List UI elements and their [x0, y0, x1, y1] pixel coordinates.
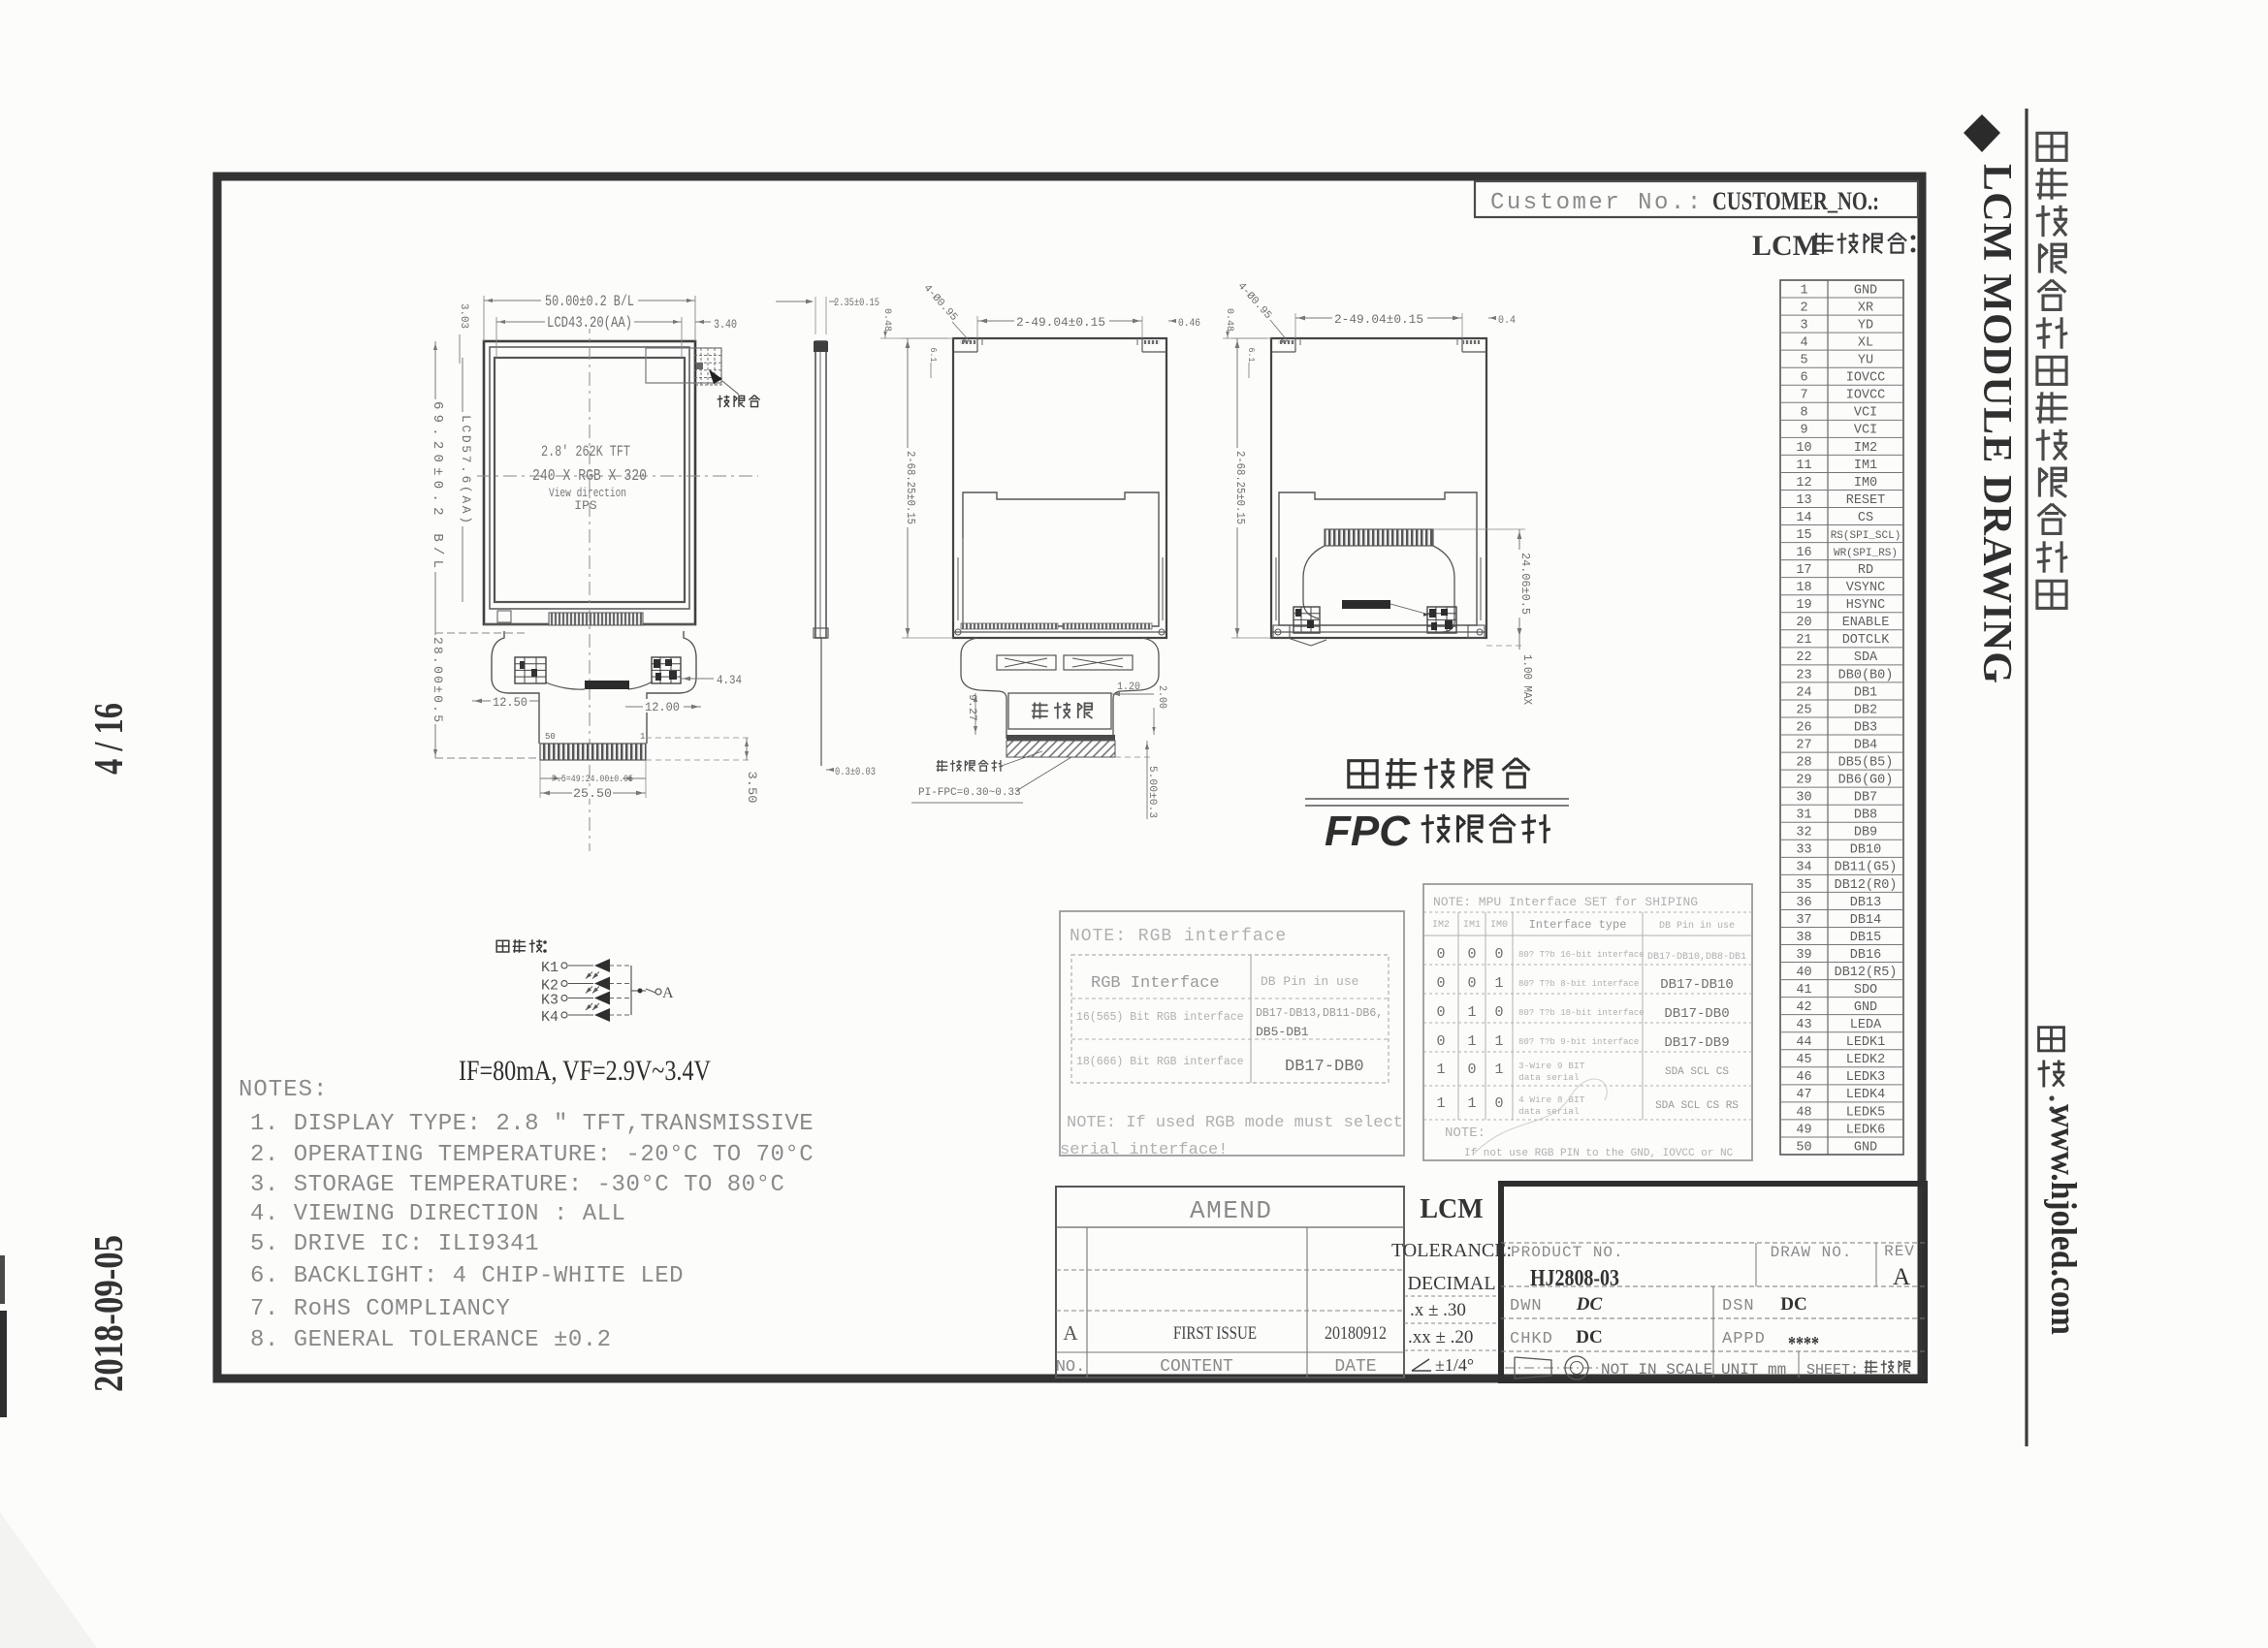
svg-text:PRODUCT NO.: PRODUCT NO. [1511, 1244, 1624, 1261]
svg-text:XL: XL [1858, 336, 1873, 351]
svg-text:DB7: DB7 [1854, 791, 1877, 806]
svg-text:12.00: 12.00 [645, 700, 680, 714]
svg-text:0: 0 [1467, 1062, 1476, 1078]
svg-text:LCD43.20(AA): LCD43.20(AA) [547, 314, 632, 332]
svg-text:LEDK4: LEDK4 [1846, 1088, 1886, 1102]
svg-text:1.00 MAX: 1.00 MAX [1520, 654, 1534, 705]
svg-text:IOVCC: IOVCC [1846, 371, 1886, 386]
svg-text:2.00: 2.00 [1156, 685, 1167, 709]
svg-text:28: 28 [1796, 755, 1811, 770]
svg-text:A: A [1063, 1321, 1078, 1345]
svg-text:20180912: 20180912 [1325, 1323, 1387, 1344]
svg-text:3.50: 3.50 [745, 772, 759, 804]
svg-text:0.4: 0.4 [1498, 315, 1516, 327]
svg-text:47: 47 [1796, 1088, 1811, 1102]
svg-text:CUSTOMER_NO.:: CUSTOMER_NO.: [1712, 187, 1879, 215]
svg-text:38: 38 [1796, 931, 1811, 945]
svg-text:NOTE: MPU Interface SET for SH: NOTE: MPU Interface SET for SHIPING [1433, 895, 1698, 909]
svg-text:NOT IN SCALE: NOT IN SCALE [1601, 1361, 1712, 1379]
svg-text:IM2: IM2 [1432, 920, 1450, 931]
svg-text:0: 0 [1436, 1004, 1445, 1021]
svg-text:3.03: 3.03 [458, 303, 469, 329]
svg-text:20: 20 [1796, 616, 1811, 630]
svg-text:CHKD: CHKD [1510, 1330, 1553, 1348]
svg-text:80? T?b 8-bit interface: 80? T?b 8-bit interface [1518, 979, 1639, 989]
svg-text:ENABLE: ENABLE [1842, 616, 1890, 630]
svg-text:6.1: 6.1 [928, 348, 938, 363]
svg-text:SDA: SDA [1854, 650, 1878, 665]
svg-text:DB17-DB9: DB17-DB9 [1664, 1035, 1729, 1051]
svg-text:APPD: APPD [1722, 1330, 1766, 1348]
svg-text:6: 6 [1800, 371, 1807, 386]
svg-text:2: 2 [1800, 301, 1807, 315]
svg-text:LEDK5: LEDK5 [1846, 1105, 1886, 1120]
svg-text:28.00±0.5: 28.00±0.5 [431, 637, 445, 722]
svg-text:10: 10 [1796, 441, 1811, 456]
svg-text:IM1: IM1 [1854, 459, 1877, 473]
svg-text:DC: DC [1576, 1294, 1603, 1315]
svg-text:LEDA: LEDA [1850, 1018, 1882, 1032]
svg-text:2018-09-05: 2018-09-05 [87, 1235, 132, 1392]
svg-text:0: 0 [1494, 1095, 1503, 1112]
svg-text:data serial: data serial [1518, 1072, 1580, 1083]
svg-text:46: 46 [1796, 1070, 1811, 1085]
svg-text:NOTE:: NOTE: [1445, 1125, 1485, 1141]
svg-text:0: 0 [1436, 975, 1445, 992]
svg-text:DWN: DWN [1510, 1297, 1543, 1315]
svg-text:DB17-DB10: DB17-DB10 [1660, 977, 1734, 993]
svg-text:8: 8 [1800, 406, 1807, 421]
svg-text:44: 44 [1796, 1035, 1811, 1050]
svg-text:24.06±0.5: 24.06±0.5 [1518, 553, 1532, 615]
svg-text:25: 25 [1796, 703, 1811, 717]
svg-text:39: 39 [1796, 948, 1811, 963]
svg-text:IM0: IM0 [1490, 920, 1508, 931]
svg-text:TOLERANCE:: TOLERANCE: [1391, 1240, 1512, 1261]
svg-text:SHEET:: SHEET: [1806, 1362, 1859, 1379]
svg-text:HJ2808-03: HJ2808-03 [1530, 1266, 1619, 1291]
svg-text:VSYNC: VSYNC [1846, 581, 1886, 595]
svg-text:serial interface!: serial interface! [1060, 1141, 1228, 1159]
svg-text:4.34: 4.34 [717, 673, 742, 687]
svg-text:DC: DC [1780, 1294, 1806, 1315]
svg-text:LEDK2: LEDK2 [1846, 1053, 1886, 1067]
svg-text:49: 49 [1796, 1123, 1811, 1137]
svg-text:NOTES:: NOTES: [239, 1077, 328, 1103]
svg-text:3-Wire 9 BIT: 3-Wire 9 BIT [1518, 1061, 1585, 1071]
svg-text:41: 41 [1796, 983, 1811, 998]
svg-text:25.50: 25.50 [573, 786, 612, 801]
svg-text:DOTCLK: DOTCLK [1842, 633, 1891, 648]
svg-text:GND: GND [1854, 283, 1877, 298]
svg-text:DB Pin in use: DB Pin in use [1261, 974, 1358, 989]
svg-text:1. DISPLAY TYPE: 2.8 " TFT,TRA: 1. DISPLAY TYPE: 2.8 " TFT,TRANSMISSIVE [250, 1111, 814, 1137]
svg-text:CONTENT: CONTENT [1160, 1357, 1233, 1377]
svg-text:18: 18 [1796, 581, 1811, 595]
svg-text:50.00±0.2 B/L: 50.00±0.2 B/L [545, 293, 634, 310]
svg-text:9.27: 9.27 [966, 694, 977, 721]
svg-text:0.3±0.03: 0.3±0.03 [835, 767, 876, 778]
svg-text:34: 34 [1796, 861, 1811, 875]
svg-text:LCM MODULE DRAWING: LCM MODULE DRAWING [1974, 164, 2019, 683]
svg-text:DB11(G5): DB11(G5) [1835, 861, 1898, 875]
svg-text:80? T?b 18-bit interface: 80? T?b 18-bit interface [1518, 1008, 1645, 1018]
svg-text:±1/4°: ±1/4° [1435, 1355, 1474, 1375]
svg-text:32: 32 [1796, 826, 1811, 840]
svg-text:GND: GND [1854, 1140, 1877, 1155]
svg-text:0: 0 [1467, 975, 1476, 992]
svg-text:DB5(B5): DB5(B5) [1838, 755, 1894, 770]
svg-text:33: 33 [1796, 843, 1811, 858]
svg-text:4. VIEWING DIRECTION : ALL: 4. VIEWING DIRECTION : ALL [250, 1201, 625, 1227]
svg-text:K4: K4 [541, 1009, 559, 1026]
svg-text:.xx ± .20: .xx ± .20 [1408, 1327, 1473, 1347]
svg-text:Customer No.:: Customer No.: [1490, 190, 1704, 216]
svg-text:SDO: SDO [1854, 983, 1877, 998]
svg-text:DATE: DATE [1334, 1357, 1376, 1377]
svg-text:GND: GND [1854, 1000, 1877, 1015]
svg-text:DB4: DB4 [1854, 738, 1877, 752]
svg-text:17: 17 [1796, 563, 1811, 578]
svg-text:CS: CS [1858, 511, 1873, 525]
svg-text:WR(SPI_RS): WR(SPI_RS) [1834, 548, 1898, 559]
svg-text:0.48: 0.48 [881, 308, 892, 332]
svg-text:DB2: DB2 [1854, 703, 1877, 717]
svg-text:16: 16 [1796, 546, 1811, 560]
svg-text:45: 45 [1796, 1053, 1811, 1067]
svg-text:PI-FPC=0.30~0.33: PI-FPC=0.30~0.33 [918, 787, 1021, 799]
svg-text:36: 36 [1796, 896, 1811, 910]
svg-text:DECIMAL: DECIMAL [1407, 1273, 1495, 1294]
svg-text:2.35±0.15: 2.35±0.15 [834, 298, 879, 309]
svg-text:1: 1 [1467, 1095, 1476, 1112]
svg-text:21: 21 [1796, 633, 1811, 648]
svg-text:NO.: NO. [1056, 1358, 1086, 1377]
svg-text:SDA SCL CS RS: SDA SCL CS RS [1655, 1100, 1739, 1112]
svg-text:DB14: DB14 [1850, 913, 1881, 928]
svg-text:DB16: DB16 [1850, 948, 1881, 963]
svg-text:AMEND: AMEND [1190, 1196, 1271, 1225]
svg-text:DB9: DB9 [1854, 826, 1877, 840]
svg-text:4: 4 [1800, 336, 1807, 351]
svg-text:15: 15 [1796, 528, 1811, 543]
svg-text:12.50: 12.50 [493, 695, 527, 710]
svg-text:31: 31 [1796, 808, 1811, 823]
svg-text:DB6(G0): DB6(G0) [1838, 774, 1894, 788]
svg-text:DB17-DB0: DB17-DB0 [1285, 1058, 1364, 1076]
svg-text:13: 13 [1796, 493, 1811, 508]
svg-text:48: 48 [1796, 1105, 1811, 1120]
svg-text:6. BACKLIGHT: 4 CHIP-WHITE LED: 6. BACKLIGHT: 4 CHIP-WHITE LED [250, 1263, 684, 1289]
svg-text:0: 0 [1467, 946, 1476, 963]
svg-text:XR: XR [1858, 301, 1873, 315]
svg-text:DB17-DB0: DB17-DB0 [1664, 1006, 1729, 1022]
svg-text:30: 30 [1796, 791, 1811, 806]
svg-text:VCI: VCI [1854, 424, 1877, 438]
svg-text:HSYNC: HSYNC [1846, 598, 1886, 613]
svg-text:DB8: DB8 [1854, 808, 1877, 823]
svg-text:DB Pin in use: DB Pin in use [1659, 920, 1735, 932]
svg-text:0: 0 [1494, 1004, 1503, 1021]
svg-text:A: A [662, 985, 674, 1001]
svg-text:IM1: IM1 [1463, 920, 1481, 931]
svg-text:80? T?b 16-bit interface: 80? T?b 16-bit interface [1518, 950, 1645, 960]
svg-text:YU: YU [1858, 354, 1873, 368]
svg-text:DB10: DB10 [1850, 843, 1881, 858]
svg-text:RGB Interface: RGB Interface [1091, 974, 1220, 993]
svg-text:DRAW NO.: DRAW NO. [1771, 1244, 1853, 1261]
svg-text:K1: K1 [541, 960, 559, 976]
svg-text:2.8' 262K TFT: 2.8' 262K TFT [541, 443, 630, 460]
svg-text:2-68.25±0.15: 2-68.25±0.15 [904, 451, 917, 524]
svg-text:UNIT mm: UNIT mm [1721, 1361, 1786, 1379]
svg-text:YD: YD [1858, 318, 1873, 333]
svg-text:27: 27 [1796, 738, 1811, 752]
svg-text:2-49.04±0.15: 2-49.04±0.15 [1334, 312, 1423, 327]
svg-text:P.5=49:24.00±0.05: P.5=49:24.00±0.05 [552, 775, 633, 785]
svg-text:DB3: DB3 [1854, 720, 1877, 735]
svg-text:DC: DC [1576, 1327, 1602, 1347]
svg-text:DB15: DB15 [1850, 931, 1881, 945]
svg-text:0.48: 0.48 [1224, 308, 1234, 332]
svg-text:40: 40 [1796, 966, 1811, 980]
svg-text:SDA SCL CS: SDA SCL CS [1665, 1066, 1729, 1078]
svg-text:DB13: DB13 [1850, 896, 1881, 910]
svg-text:1: 1 [1494, 1062, 1503, 1078]
svg-text:If not use RGB PIN to the GND,: If not use RGB PIN to the GND, IOVCC or … [1464, 1148, 1734, 1159]
svg-text:1: 1 [1494, 1033, 1503, 1050]
svg-text:2-68.25±0.15: 2-68.25±0.15 [1233, 451, 1247, 524]
svg-text:0: 0 [1436, 946, 1445, 963]
svg-text:IPS: IPS [574, 498, 597, 513]
svg-text:12: 12 [1796, 476, 1811, 491]
svg-text:42: 42 [1796, 1000, 1811, 1015]
svg-text:1: 1 [1436, 1095, 1445, 1112]
svg-text:1: 1 [1436, 1062, 1445, 1078]
svg-text:5.00±0.3: 5.00±0.3 [1146, 766, 1158, 818]
svg-text:DB5-DB1: DB5-DB1 [1256, 1025, 1309, 1039]
svg-text:DB0(B0): DB0(B0) [1838, 668, 1894, 682]
svg-text:11: 11 [1796, 459, 1811, 473]
svg-text:LCD57.6(AA): LCD57.6(AA) [459, 415, 473, 523]
svg-text:1.20: 1.20 [1117, 681, 1140, 693]
svg-text:1: 1 [1800, 283, 1807, 298]
svg-text:VCI: VCI [1854, 406, 1877, 421]
svg-text:LEDK6: LEDK6 [1846, 1123, 1886, 1137]
svg-text:5: 5 [1800, 354, 1807, 368]
svg-text:1: 1 [1467, 1033, 1476, 1050]
svg-text:RS(SPI_SCL): RS(SPI_SCL) [1831, 530, 1901, 542]
svg-text:16(565) Bit RGB interface: 16(565) Bit RGB interface [1076, 1011, 1244, 1024]
svg-text:2. OPERATING TEMPERATURE: -2: 2. OPERATING TEMPERATURE: -20°C TO 70°C [250, 1142, 814, 1168]
svg-text:0: 0 [1436, 1033, 1445, 1050]
svg-text:LCM: LCM [1420, 1194, 1483, 1224]
svg-text:14: 14 [1796, 511, 1811, 525]
svg-text:5. DRIVE IC: ILI9341: 5. DRIVE IC: ILI9341 [250, 1231, 539, 1257]
svg-text:DB17-DB13,DB11-DB6,: DB17-DB13,DB11-DB6, [1256, 1007, 1383, 1020]
svg-text:50: 50 [1796, 1140, 1811, 1155]
svg-text:1: 1 [640, 732, 645, 742]
svg-text:8. GENERAL TOLERANCE ±0.2: 8. GENERAL TOLERANCE ±0.2 [250, 1327, 612, 1353]
svg-text:RESET: RESET [1846, 493, 1886, 508]
svg-text:9: 9 [1800, 424, 1807, 438]
svg-text:RD: RD [1858, 563, 1873, 578]
svg-text:FPC: FPC [1325, 808, 1411, 855]
svg-text:NOTE: If used RGB mode must se: NOTE: If used RGB mode must select [1067, 1114, 1403, 1132]
svg-text:23: 23 [1796, 668, 1811, 682]
svg-text:19: 19 [1796, 598, 1811, 613]
svg-text:LEDK1: LEDK1 [1846, 1035, 1886, 1050]
svg-text:FIRST ISSUE: FIRST ISSUE [1173, 1323, 1257, 1344]
svg-text:.x ± .30: .x ± .30 [1410, 1300, 1466, 1320]
svg-text:7: 7 [1800, 389, 1807, 403]
svg-text:4 Wire 8 BIT: 4 Wire 8 BIT [1518, 1094, 1585, 1105]
svg-text:LCM: LCM [1752, 230, 1820, 262]
svg-text:3.40: 3.40 [714, 317, 737, 332]
svg-text:0.46: 0.46 [1178, 318, 1200, 330]
svg-text:26: 26 [1796, 720, 1811, 735]
svg-text:43: 43 [1796, 1018, 1811, 1032]
svg-text:DSN: DSN [1722, 1297, 1755, 1315]
svg-text:1: 1 [1494, 975, 1503, 992]
svg-text:3. STORAGE TEMPERATURE: -30: 3. STORAGE TEMPERATURE: -30°C TO 80°C [250, 1172, 784, 1198]
svg-text:1: 1 [1467, 1004, 1476, 1021]
svg-text:DB12(R5): DB12(R5) [1835, 966, 1898, 980]
svg-text:35: 35 [1796, 878, 1811, 893]
svg-text:DB12(R0): DB12(R0) [1835, 878, 1898, 893]
svg-text:DB17-DB10,DB8-DB1: DB17-DB10,DB8-DB1 [1647, 952, 1746, 963]
svg-text:80? T?b 9-bit interface: 80? T?b 9-bit interface [1518, 1037, 1639, 1047]
svg-text:2-49.04±0.15: 2-49.04±0.15 [1016, 315, 1105, 330]
svg-text:IOVCC: IOVCC [1846, 389, 1886, 403]
svg-text:4 / 16: 4 / 16 [87, 703, 132, 775]
svg-text:IF=80mA, VF=2.9V~3.4V: IF=80mA, VF=2.9V~3.4V [459, 1055, 711, 1087]
svg-text:LEDK3: LEDK3 [1846, 1070, 1886, 1085]
svg-text:REV: REV [1884, 1243, 1915, 1260]
svg-text:6.1: 6.1 [1246, 348, 1256, 363]
svg-text:22: 22 [1796, 650, 1811, 665]
svg-text:3: 3 [1800, 318, 1807, 333]
svg-text:18(666) Bit RGB interface: 18(666) Bit RGB interface [1076, 1056, 1244, 1068]
svg-text:IM0: IM0 [1854, 476, 1877, 491]
svg-text:37: 37 [1796, 913, 1811, 928]
svg-text:Interface type: Interface type [1529, 918, 1627, 932]
svg-text:K3: K3 [541, 993, 559, 1009]
svg-text:24: 24 [1796, 685, 1811, 700]
svg-text:7. RoHS COMPLIANCY: 7. RoHS COMPLIANCY [250, 1296, 510, 1322]
svg-text:50: 50 [545, 732, 556, 742]
svg-text:DB1: DB1 [1854, 685, 1877, 700]
svg-text:www.hjoled.com: www.hjoled.com [2043, 1104, 2083, 1335]
svg-text:IM2: IM2 [1854, 441, 1877, 456]
svg-text:0: 0 [1494, 946, 1503, 963]
svg-text:NOTE: RGB interface: NOTE: RGB interface [1070, 927, 1287, 946]
svg-text:29: 29 [1796, 774, 1811, 788]
